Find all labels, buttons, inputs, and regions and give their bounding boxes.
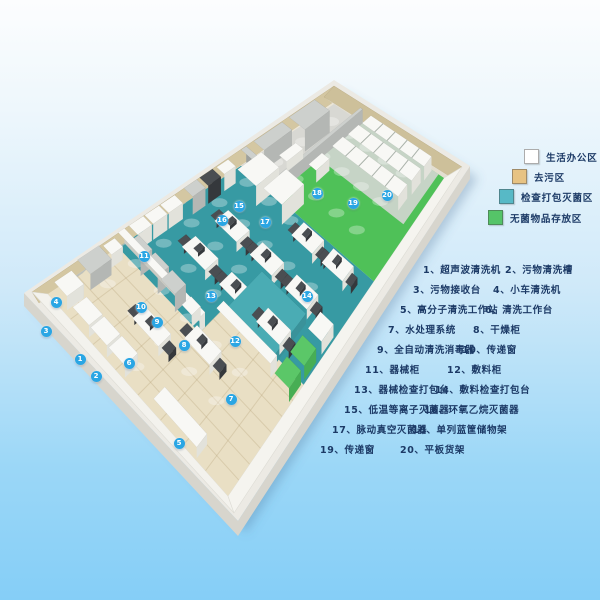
equipment-item-14: 14、敷料检查打包台 [435,382,530,396]
legend-label-3: 检查打包灭菌区 [521,190,593,204]
legend-swatch-4 [488,210,503,225]
legend-label-4: 无菌物品存放区 [510,211,582,225]
legend-label-1: 生活办公区 [546,150,598,164]
equipment-item-8: 8、干燥柜 [473,322,521,336]
cssd-floorplan-scene: 生活办公区去污区检查打包灭菌区无菌物品存放区 1、超声波清洗机2、污物清洗槽3、… [0,0,600,600]
equipment-item-20: 20、平板货架 [400,442,465,456]
plan-marker-18: 18 [312,188,323,199]
equipment-item-1: 1、超声波清洗机 [423,262,501,276]
legend-row-4: 无菌物品存放区 [488,210,582,225]
plan-marker-10: 10 [136,302,147,313]
plan-marker-3: 3 [41,326,52,337]
equipment-item-12: 12、敷料柜 [447,362,502,376]
legend-swatch-3 [499,189,514,204]
plan-marker-4: 4 [51,297,62,308]
legend-label-2: 去污区 [534,170,565,184]
plan-marker-9: 9 [152,317,163,328]
plan-marker-8: 8 [179,340,190,351]
equipment-item-6: 6、清洗工作台 [485,302,553,316]
floorplan-3d-rendering [0,0,600,600]
plan-marker-5: 5 [174,438,185,449]
equipment-item-19: 19、传递窗 [320,442,375,456]
plan-marker-15: 15 [234,201,245,212]
equipment-item-10: 10、传递窗 [462,342,517,356]
legend-row-3: 检查打包灭菌区 [499,189,593,204]
equipment-item-16: 16、环氧乙烷灭菌器 [424,402,519,416]
legend-swatch-1 [524,149,539,164]
plan-marker-14: 14 [302,291,313,302]
plan-marker-16: 16 [217,215,228,226]
plan-marker-2: 2 [91,371,102,382]
equipment-item-9: 9、全自动清洗消毒器 [377,342,475,356]
equipment-item-18: 18、单列蓝筐储物架 [412,422,507,436]
equipment-item-11: 11、器械柜 [365,362,420,376]
plan-marker-13: 13 [206,291,217,302]
plan-marker-20: 20 [382,190,393,201]
plan-marker-19: 19 [348,198,359,209]
legend-row-2: 去污区 [512,169,565,184]
plan-marker-7: 7 [226,394,237,405]
legend-swatch-2 [512,169,527,184]
equipment-item-4: 4、小车清洗机 [493,282,561,296]
equipment-item-2: 2、污物清洗槽 [505,262,573,276]
equipment-item-7: 7、水处理系统 [388,322,456,336]
plan-marker-6: 6 [124,358,135,369]
plan-marker-1: 1 [75,354,86,365]
equipment-item-3: 3、污物接收台 [413,282,481,296]
legend-row-1: 生活办公区 [524,149,598,164]
equipment-item-5: 5、高分子清洗工作站 [400,302,498,316]
plan-marker-12: 12 [230,336,241,347]
plan-marker-17: 17 [260,217,271,228]
plan-marker-11: 11 [139,251,150,262]
